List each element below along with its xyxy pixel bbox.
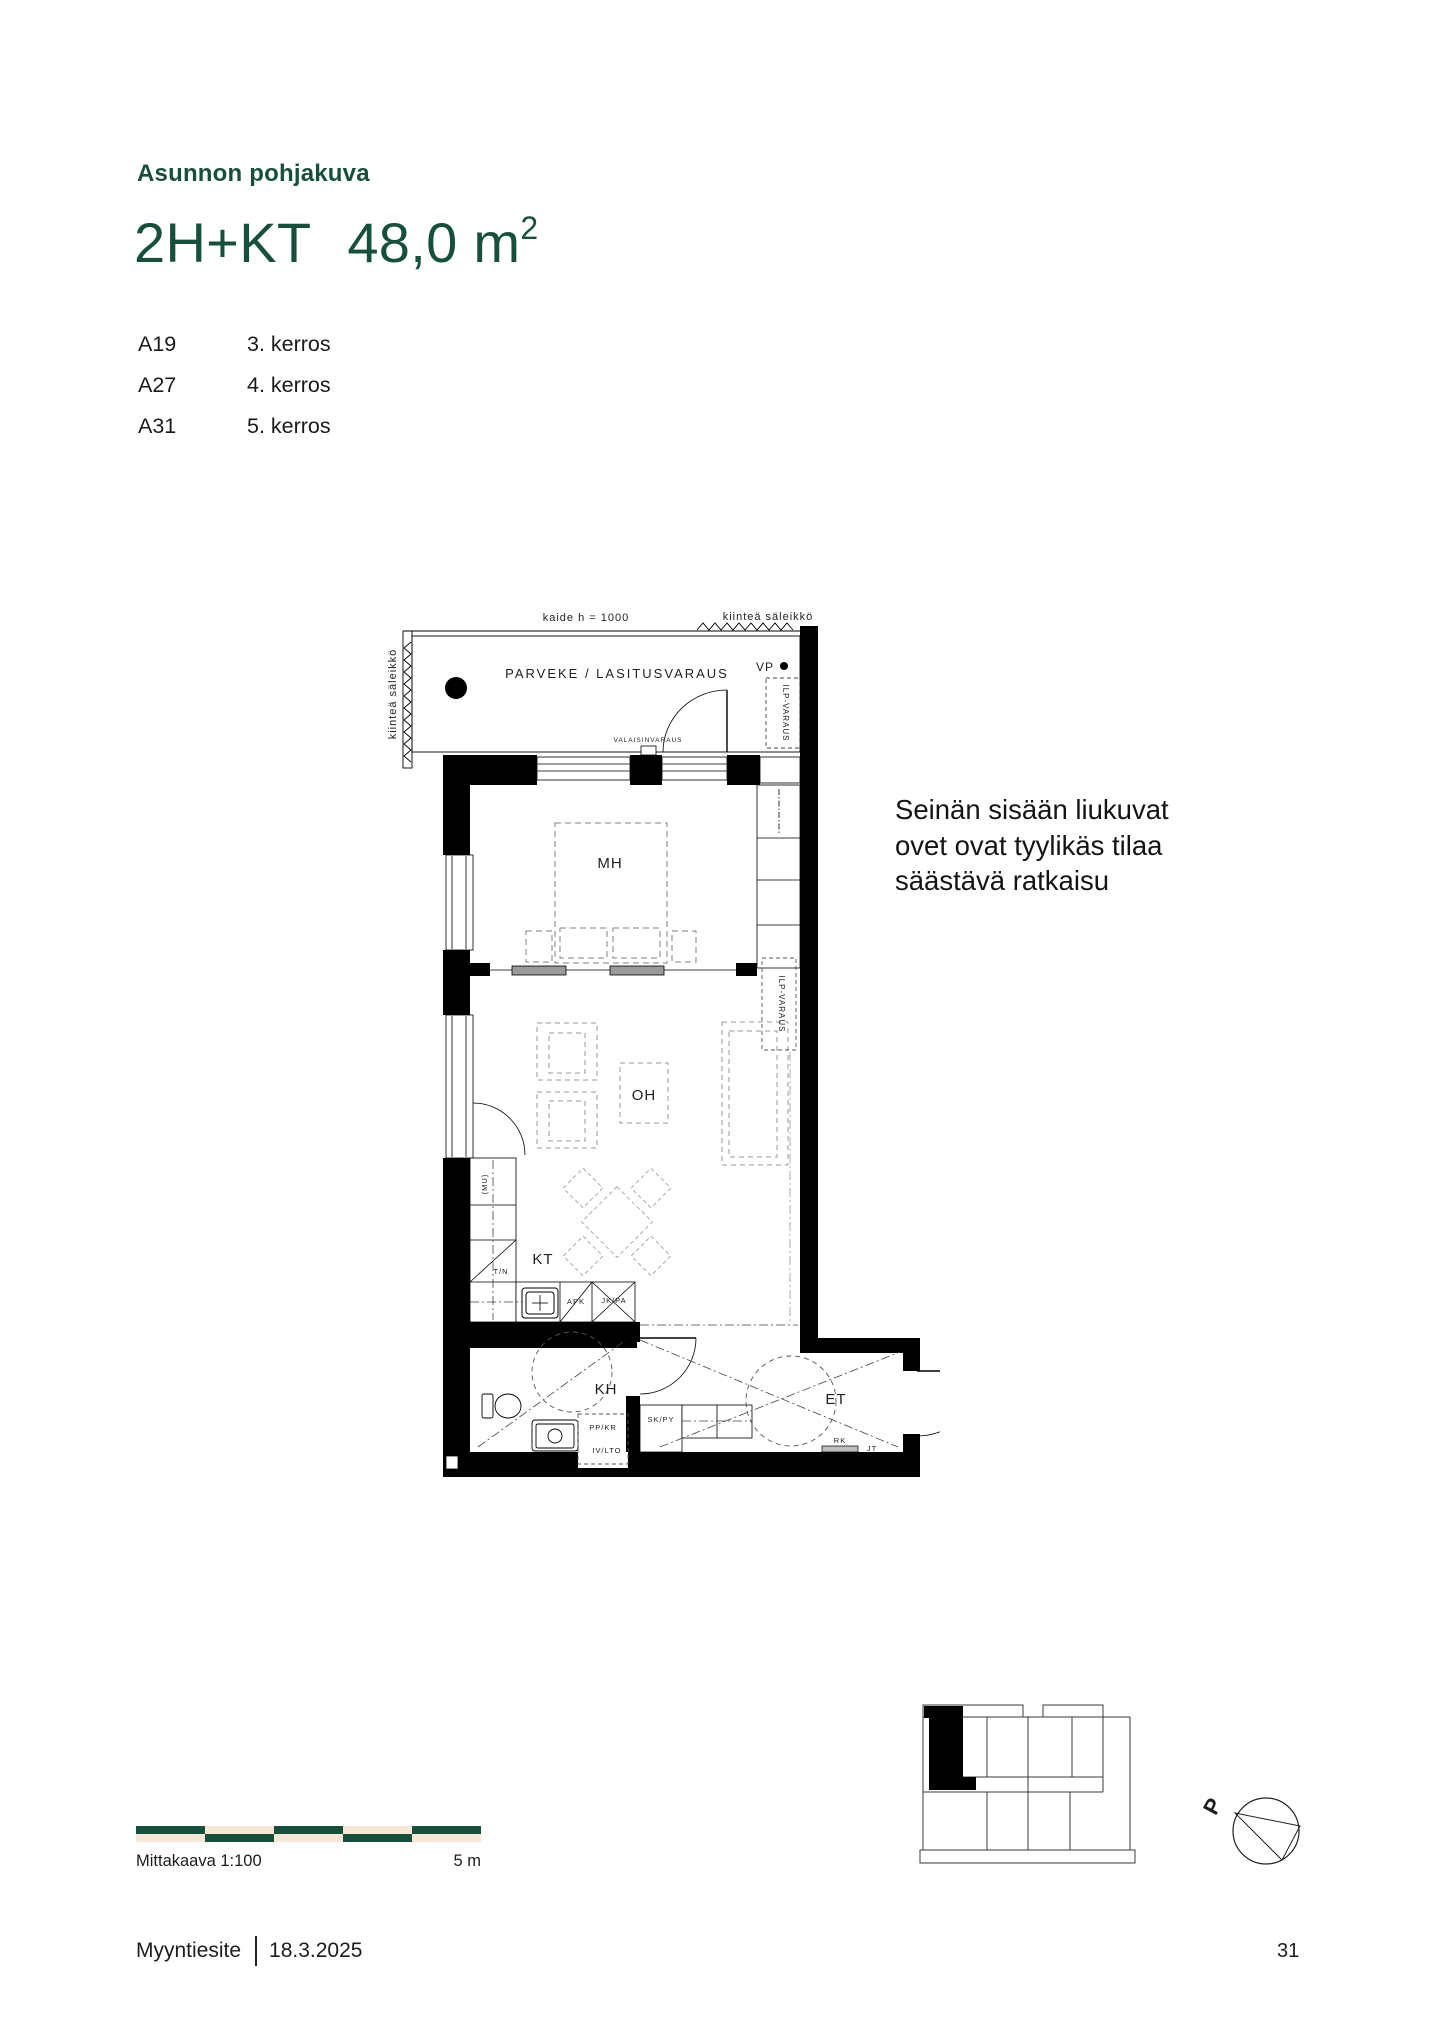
room-label-living: OH [632, 1087, 657, 1104]
wall-left-seg3 [443, 1158, 470, 1452]
scale-ratio-label: Mittakaava 1:100 [136, 1852, 262, 1871]
sliding-wall-stub-right [736, 963, 757, 976]
page-footer: Myyntiesite 18.3.2025 [136, 1936, 362, 1966]
bed-pillow [560, 928, 607, 958]
scale-bar [136, 1824, 481, 1844]
unit-floor: 5. kerros [247, 414, 331, 439]
vp-dot [780, 662, 788, 670]
footer-doc-type: Myyntiesite [136, 1939, 241, 1963]
wall-north-pier-1 [443, 755, 537, 785]
keyplan: P [905, 1695, 1315, 1880]
dining-chair [631, 1168, 671, 1208]
room-label-bathroom: KH [595, 1381, 618, 1398]
entry-turning-circle [746, 1356, 836, 1446]
jt-label: JT [867, 1444, 877, 1453]
washer-drum [548, 1429, 562, 1443]
scale-cell [136, 1834, 205, 1842]
ivlto-label: IV/LTO [592, 1446, 621, 1455]
entrance-door [917, 1371, 940, 1436]
balcony-slab [412, 636, 800, 752]
ilp-varaus-label-living: ILP-VARAUS [777, 976, 786, 1033]
armchair [537, 1023, 597, 1080]
footer-separator [255, 1936, 257, 1966]
scale-cell [412, 1826, 481, 1834]
mu-label: (MU) [480, 1174, 489, 1195]
bedroom-wardrobe [757, 785, 800, 968]
dining-chair [631, 1236, 671, 1276]
wall-bottom [443, 1452, 920, 1477]
apartment-area: 48,0 m [347, 210, 520, 275]
window-fixed-glazing [760, 757, 800, 783]
room-label-entry: ET [825, 1391, 846, 1408]
footer-date: 18.3.2025 [269, 1939, 362, 1963]
wall-right [800, 626, 818, 1353]
apk-label: APK [567, 1297, 585, 1306]
balcony-column [445, 677, 467, 699]
apartment-list: A19 3. kerros A27 4. kerros A31 5. kerro… [138, 324, 331, 447]
area-superscript: 2 [520, 212, 538, 244]
kitchen-sink [522, 1288, 558, 1318]
sliding-door-panel [610, 966, 664, 975]
wall-entry-right-top [903, 1353, 920, 1371]
living-furniture [537, 1022, 788, 1165]
living-window-door-arc [473, 1103, 525, 1155]
bathroom-fixtures [482, 1394, 578, 1451]
wall-entry-right-bottom [903, 1434, 920, 1452]
entry-closets [640, 1405, 752, 1452]
ilp-varaus-label-balcony: ILP-VARAUS [781, 685, 790, 742]
scale-cell [343, 1826, 412, 1834]
dining-table [582, 1187, 653, 1258]
sliding-wall-stub-left [470, 963, 490, 976]
floorplan-drawing: kaide h = 1000 kiinteä säleikkö kiinteä … [385, 595, 940, 1500]
apartment-type: 2H+KT [134, 210, 311, 275]
armchair [537, 1092, 597, 1148]
bed [526, 823, 696, 963]
armchair-cushion [549, 1033, 585, 1073]
scale-cell [205, 1834, 274, 1842]
bathroom-door-arc [640, 1338, 696, 1394]
wall-vent [446, 1456, 458, 1469]
jkpa-label: JK/PA [601, 1296, 626, 1305]
wall-left-seg1 [443, 785, 470, 855]
scale-cell [205, 1826, 274, 1834]
sliding-doors [488, 966, 738, 975]
entrance-door-arc [917, 1371, 940, 1436]
wall-kitchen-bath [443, 1322, 637, 1348]
sliding-door-panel [512, 966, 566, 975]
apartment-row: A19 3. kerros [138, 324, 331, 365]
apartment-row: A27 4. kerros [138, 365, 331, 406]
unit-floor: 4. kerros [247, 373, 331, 398]
sofa-cushion [729, 1031, 777, 1157]
scale-cell [274, 1834, 343, 1842]
bed-pillow [613, 928, 660, 958]
room-label-kitchen: KT [532, 1251, 553, 1268]
brochure-page: { "colors": { "accent_green": "#16503a",… [0, 0, 1440, 2036]
wall-entry-step [800, 1338, 920, 1353]
north-arrow [1233, 1798, 1300, 1864]
light-reservation-label: VALAISINVARAUS [613, 737, 682, 744]
north-arrow-circle [1233, 1798, 1299, 1864]
electric-panel-rk [822, 1446, 858, 1452]
balcony-label: PARVEKE / LASITUSVARAUS [505, 666, 729, 681]
window-north-1 [537, 757, 630, 780]
sofa [722, 1022, 788, 1165]
bed-outline [555, 823, 667, 963]
dining-chair [563, 1168, 603, 1208]
apartment-location-highlight [924, 1706, 976, 1790]
dining-chair [563, 1236, 603, 1276]
walls [443, 626, 920, 1477]
scale-length-label: 5 m [453, 1852, 481, 1871]
unit-id: A27 [138, 373, 247, 398]
unit-id: A31 [138, 414, 247, 439]
nightstand [672, 931, 696, 962]
railing-height-label: kaide h = 1000 [543, 612, 629, 624]
wall-bath-entry-top [626, 1322, 640, 1342]
window-balcony-door [662, 757, 727, 780]
north-label: P [1198, 1794, 1227, 1819]
ppkr-label: PP/KR [589, 1423, 617, 1432]
wall-left-seg2 [443, 950, 470, 1015]
fixed-grille-label-left: kiinteä säleikkö [387, 649, 399, 740]
top-grille-zigzag [697, 623, 793, 630]
scale-labels: Mittakaava 1:100 5 m [136, 1852, 481, 1871]
page-number: 31 [1277, 1940, 1299, 1963]
scale-cell [412, 1834, 481, 1842]
vp-label: VP [756, 660, 774, 674]
window-living [446, 1015, 473, 1158]
wall-north-pier-2 [630, 755, 662, 785]
bathroom-door [640, 1338, 696, 1394]
toilet-bowl [495, 1394, 521, 1418]
wall-north-pier-3 [727, 755, 760, 785]
skpy-label: SK/PY [647, 1415, 674, 1424]
building-base [920, 1850, 1135, 1863]
unit-floor: 3. kerros [247, 332, 331, 357]
scale-cell [274, 1826, 343, 1834]
apartment-row: A31 5. kerros [138, 406, 331, 447]
tn-label: T/N [493, 1267, 508, 1276]
nightstand [526, 931, 552, 962]
window-bedroom [446, 855, 473, 950]
scale-cell [343, 1834, 412, 1842]
rk-label: RK [834, 1436, 846, 1445]
closet-skpy [640, 1405, 682, 1452]
fixed-grille-label-top: kiinteä säleikkö [723, 611, 814, 623]
light-reservation-box [641, 746, 656, 755]
scale-cell [136, 1826, 205, 1834]
room-label-bedroom: MH [597, 855, 622, 872]
unit-id: A19 [138, 332, 247, 357]
page-title: 2H+KT 48,0 m 2 [134, 210, 538, 275]
armchair-cushion [549, 1101, 585, 1141]
page-eyebrow: Asunnon pohjakuva [137, 160, 370, 188]
toilet-tank [482, 1394, 493, 1418]
left-grille-zigzag [404, 642, 411, 762]
